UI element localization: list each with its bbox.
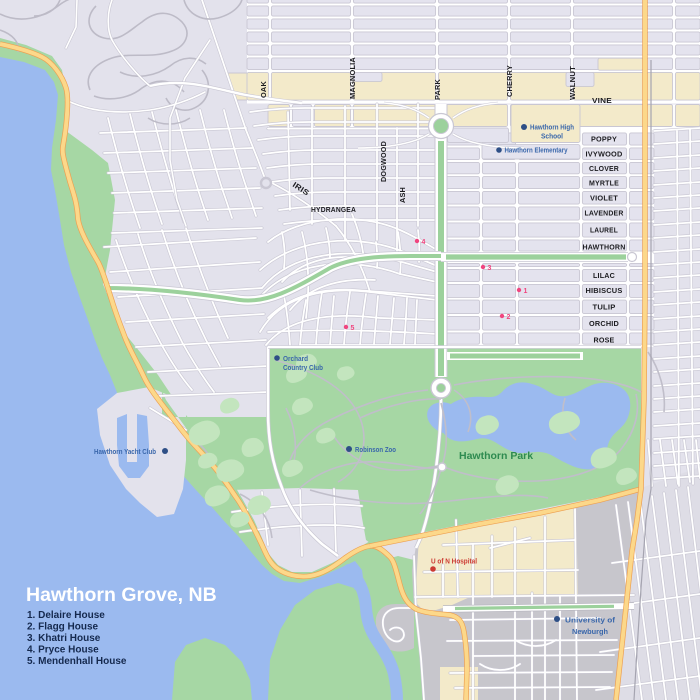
svg-text:LILAC: LILAC (593, 271, 615, 280)
svg-text:Hawthorn Grove, NB: Hawthorn Grove, NB (26, 584, 217, 606)
svg-text:1: 1 (524, 288, 528, 295)
svg-text:WALNUT: WALNUT (568, 66, 577, 100)
svg-text:TULIP: TULIP (593, 303, 616, 312)
svg-text:CLOVER: CLOVER (589, 164, 619, 173)
svg-text:Newburgh: Newburgh (572, 627, 608, 636)
svg-text:1. Delaire House: 1. Delaire House (27, 610, 105, 621)
svg-text:Hawthorn Elementary: Hawthorn Elementary (505, 146, 569, 155)
svg-text:PARK: PARK (433, 79, 442, 100)
svg-text:Orchard: Orchard (283, 354, 308, 363)
svg-text:VIOLET: VIOLET (590, 194, 618, 203)
svg-text:School: School (541, 132, 563, 141)
svg-text:2. Flagg House: 2. Flagg House (27, 622, 99, 633)
svg-text:DOGWOOD: DOGWOOD (379, 141, 388, 182)
svg-text:MAGNOLIA: MAGNOLIA (348, 57, 357, 99)
svg-text:ORCHID: ORCHID (589, 319, 619, 328)
svg-text:U of N Hospital: U of N Hospital (431, 557, 477, 566)
svg-text:MYRTLE: MYRTLE (589, 179, 619, 188)
svg-text:University of: University of (565, 616, 616, 625)
svg-text:CHERRY: CHERRY (505, 65, 514, 97)
svg-text:HYDRANGEA: HYDRANGEA (311, 205, 356, 214)
svg-text:POPPY: POPPY (591, 135, 617, 144)
svg-text:IVYWOOD: IVYWOOD (586, 150, 623, 159)
svg-text:4. Pryce House: 4. Pryce House (27, 645, 99, 656)
svg-text:ASH: ASH (398, 187, 407, 203)
svg-text:OAK: OAK (259, 81, 268, 98)
svg-text:4: 4 (422, 239, 426, 246)
svg-text:LAUREL: LAUREL (590, 226, 618, 235)
svg-text:5: 5 (351, 325, 355, 332)
svg-text:5. Mendenhall House: 5. Mendenhall House (27, 656, 127, 667)
svg-text:Hawthorn Park: Hawthorn Park (459, 450, 533, 462)
svg-text:Hawthorn High: Hawthorn High (530, 123, 574, 132)
svg-text:Country Club: Country Club (283, 363, 323, 372)
svg-text:3. Khatri House: 3. Khatri House (27, 633, 101, 644)
svg-text:Hawthorn Yacht Club: Hawthorn Yacht Club (94, 447, 156, 456)
svg-text:VINE: VINE (592, 96, 612, 105)
svg-text:HIBISCUS: HIBISCUS (586, 286, 623, 295)
svg-text:HAWTHORN: HAWTHORN (583, 243, 626, 252)
svg-text:ROSE: ROSE (594, 336, 615, 345)
svg-text:Robinson Zoo: Robinson Zoo (355, 445, 396, 454)
svg-text:3: 3 (488, 265, 492, 272)
svg-text:LAVENDER: LAVENDER (585, 209, 624, 218)
svg-text:2: 2 (507, 314, 511, 321)
